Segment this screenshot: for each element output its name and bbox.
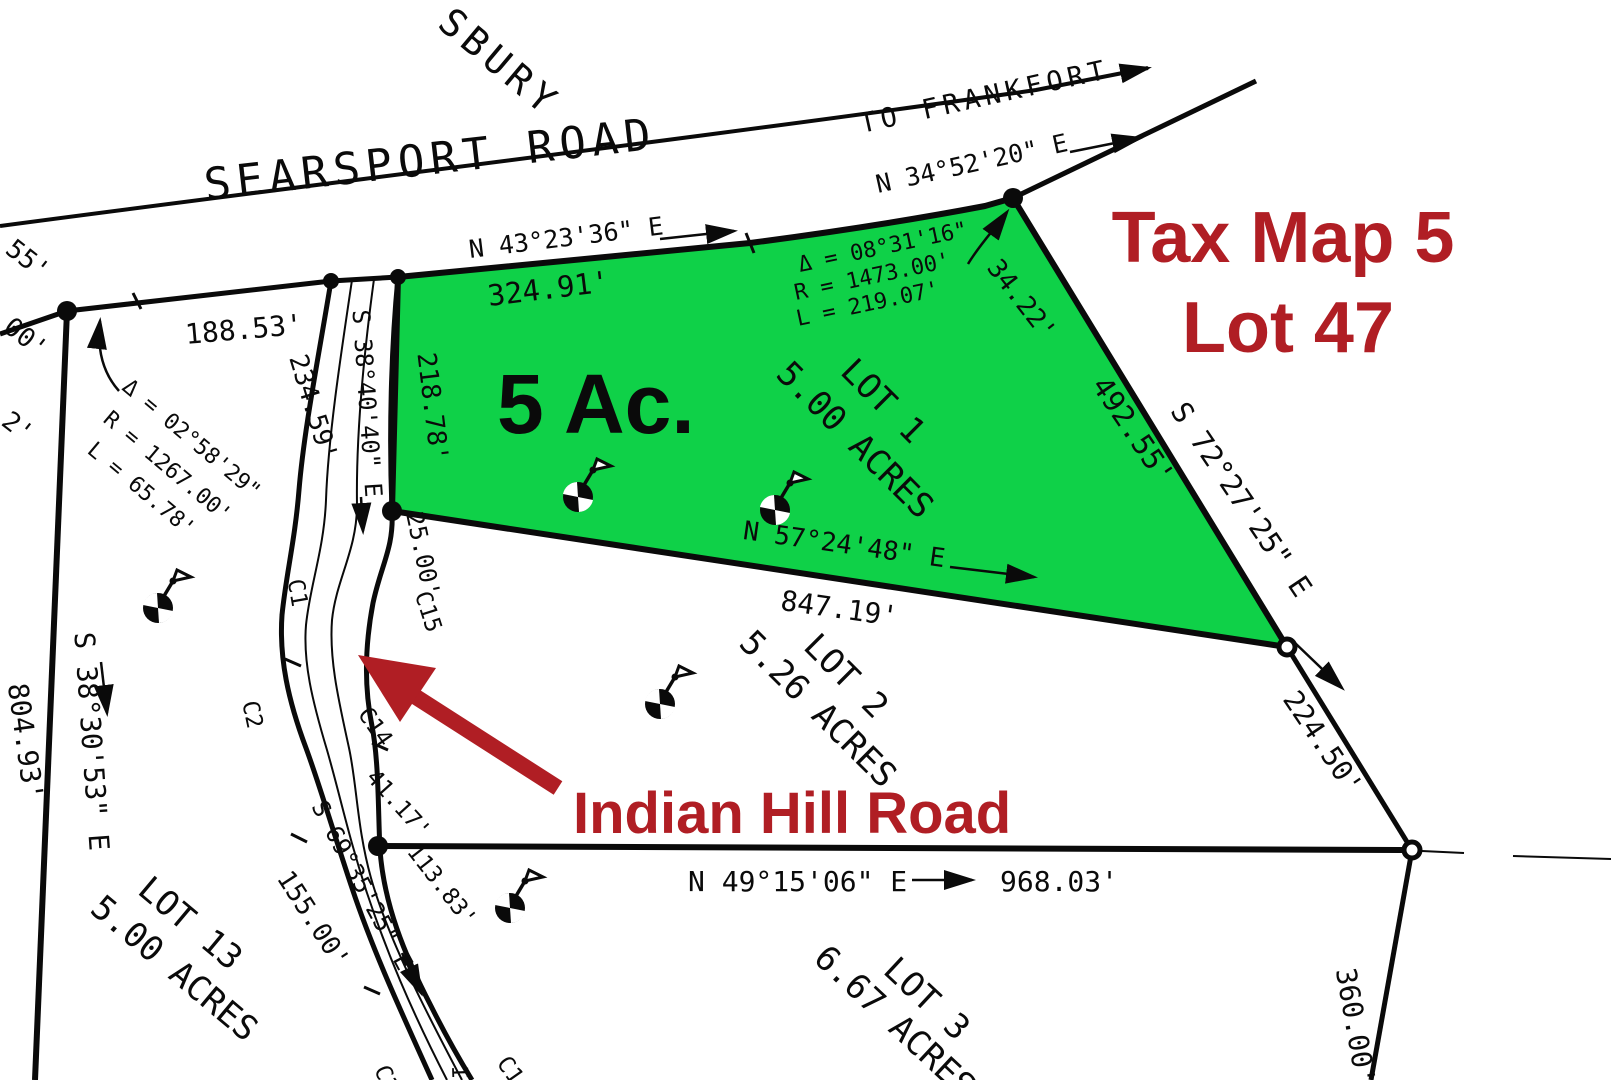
bearing-searsport-east: N 34°52'20" E: [873, 128, 1070, 199]
well-icon: [495, 870, 543, 923]
partial-road-text: IN: [446, 1065, 472, 1080]
south-boundary-line: [378, 846, 1412, 850]
distance-road-segment-c: 155.00': [270, 866, 355, 974]
bearing-arrow-n34: [1070, 138, 1140, 152]
distance-lot3-east: 360.00': [1329, 965, 1382, 1080]
to-frankfort-label: TO FRANKFORT: [857, 54, 1113, 139]
partial-curve-ref: C3: [368, 1062, 402, 1080]
curve-ref-c1: C1: [282, 577, 312, 609]
curve-ref-c14: C14: [352, 703, 397, 752]
bearing-south-boundary: N 49°15'06" E: [688, 865, 907, 898]
plat-map-canvas: SBURY SEARSPORT ROAD TO FRANKFORT N 34°5…: [0, 0, 1611, 1080]
acreage-callout: 5 Ac.: [497, 357, 695, 451]
partial-edge-label: 2': [0, 406, 39, 449]
curve-ref-c15: C15: [409, 588, 447, 636]
boundary-node: [382, 501, 402, 521]
survey-tick: [285, 659, 301, 666]
road-callout-label: Indian Hill Road: [573, 781, 1011, 846]
well-icon: [143, 570, 191, 623]
well-icon: [645, 666, 693, 719]
boundary-extension-dash-2: [1513, 856, 1611, 859]
bearing-indian-hill-upper: S 38°40'40" E: [346, 309, 387, 498]
plat-map-page: SBURY SEARSPORT ROAD TO FRANKFORT N 34°5…: [0, 0, 1611, 1080]
bearing-arrow-s72: [1294, 642, 1342, 688]
distance-lot1-south: 847.19': [779, 584, 900, 633]
boundary-node: [1003, 188, 1023, 208]
bearing-arrow-s38-40: [361, 497, 363, 531]
boundary-node-ring: [1404, 842, 1420, 858]
searsport-road-label: SEARSPORT ROAD: [201, 109, 659, 211]
west-parcel-boundary-line: [35, 311, 67, 1080]
bearing-west-boundary: S 38°30'53" E: [67, 631, 115, 852]
distance-lot1-west-lower: 25.00': [400, 509, 445, 600]
survey-tick: [291, 834, 307, 842]
tax-map-title-line1: Tax Map 5: [1112, 198, 1455, 278]
partial-road-name-label: SBURY: [430, 0, 569, 126]
distance-west-boundary: 804.93': [1, 681, 50, 802]
boundary-node: [390, 269, 406, 285]
boundary-node: [323, 273, 339, 289]
bearing-arrow-n43: [660, 231, 734, 239]
distance-south-boundary: 968.03': [1000, 865, 1118, 898]
boundary-node: [368, 836, 388, 856]
curve-ref-c2: C2: [236, 698, 267, 731]
partial-curve-ref: C1: [491, 1052, 528, 1080]
lot3-east-boundary-line: [1371, 850, 1412, 1080]
tax-map-title-line2: Lot 47: [1182, 288, 1394, 368]
boundary-extension-dash-1: [1422, 851, 1464, 853]
distance-road-segment-b: 113.83': [401, 839, 481, 931]
leader-line-curve2: [99, 321, 119, 391]
distance-road-segment-a: 41.17': [361, 765, 436, 844]
distance-searsport-west: 188.53': [184, 308, 304, 351]
partial-edge-label: 55': [0, 234, 55, 287]
lot2-east-boundary-line: [1287, 647, 1412, 850]
road-callout-arrow-shaft: [416, 697, 558, 788]
survey-tick: [364, 987, 380, 994]
boundary-node: [57, 301, 77, 321]
boundary-node-ring: [1279, 639, 1295, 655]
